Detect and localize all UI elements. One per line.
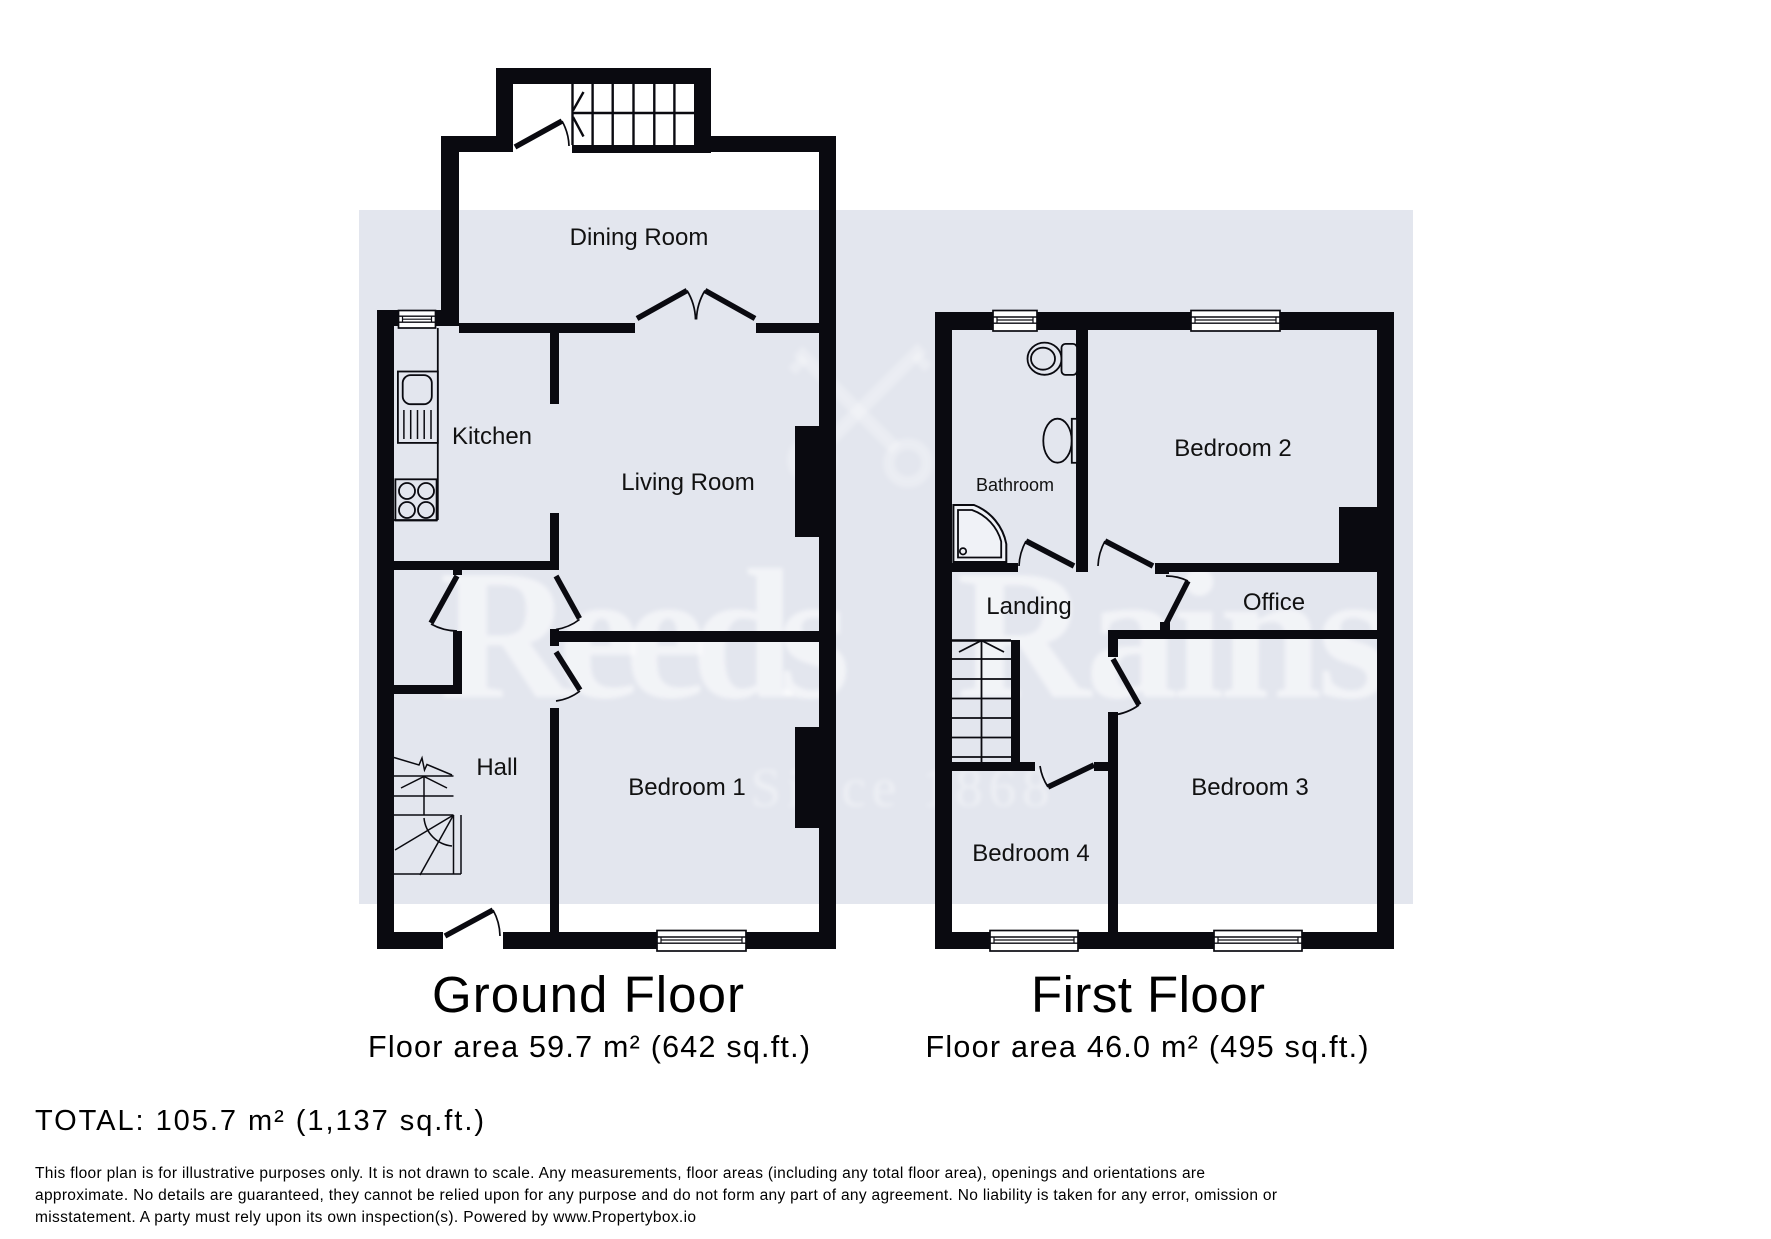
svg-text:misstatement. A party must rel: misstatement. A party must rely upon its… [35, 1209, 696, 1226]
svg-text:Bedroom 2: Bedroom 2 [1174, 435, 1291, 462]
svg-text:Bedroom 4: Bedroom 4 [972, 840, 1089, 867]
svg-text:approximate. No details are gu: approximate. No details are guaranteed, … [35, 1187, 1277, 1204]
svg-text:First Floor: First Floor [1031, 966, 1265, 1023]
svg-text:Ground Floor: Ground Floor [432, 966, 744, 1023]
svg-text:Bedroom 3: Bedroom 3 [1191, 774, 1308, 801]
svg-text:Landing: Landing [986, 593, 1071, 620]
svg-text:Bathroom: Bathroom [976, 475, 1054, 495]
svg-text:Dining Room: Dining Room [570, 224, 709, 251]
svg-text:TOTAL: 105.7 m² (1,137 sq.ft.): TOTAL: 105.7 m² (1,137 sq.ft.) [35, 1105, 484, 1137]
svg-text:Floor area 46.0 m² (495 sq.ft.: Floor area 46.0 m² (495 sq.ft.) [926, 1030, 1369, 1064]
svg-text:Kitchen: Kitchen [452, 423, 532, 450]
svg-text:Hall: Hall [476, 754, 517, 781]
svg-text:Bedroom 1: Bedroom 1 [628, 774, 745, 801]
svg-text:Floor area 59.7 m² (642 sq.ft.: Floor area 59.7 m² (642 sq.ft.) [368, 1030, 810, 1064]
svg-text:Living Room: Living Room [621, 469, 754, 496]
svg-text:Office: Office [1243, 589, 1305, 616]
svg-text:This floor plan is for illustr: This floor plan is for illustrative purp… [35, 1165, 1205, 1182]
